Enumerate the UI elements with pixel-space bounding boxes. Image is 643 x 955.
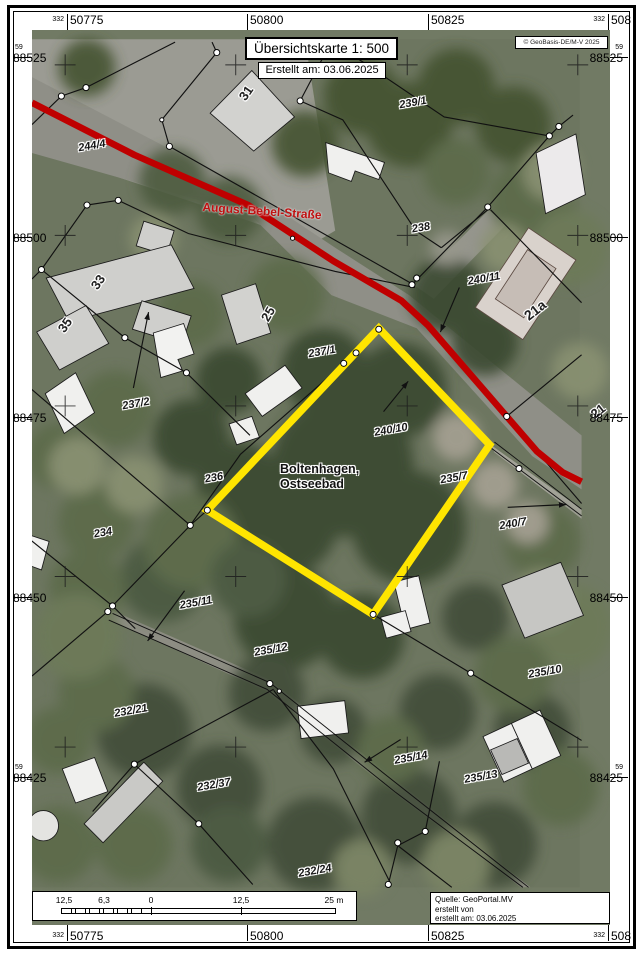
scale-bar-tick bbox=[241, 907, 242, 915]
scale-label: 12,5 bbox=[56, 895, 73, 905]
scale-bar-segment bbox=[103, 908, 114, 914]
coordinate-prefix: 59 bbox=[15, 764, 23, 771]
source-line1: Quelle: GeoPortal.MV bbox=[435, 895, 605, 905]
map-sheet: 244/4 31 239/1 August-Bebel-Straße 238 2… bbox=[0, 0, 643, 955]
coordinate-prefix: 59 bbox=[15, 44, 23, 51]
grid-tick bbox=[428, 14, 429, 30]
source-line2: erstellt von bbox=[435, 905, 605, 915]
map-title-box: Übersichtskarte 1: 500 bbox=[245, 37, 398, 60]
scale-label: 0 bbox=[149, 895, 154, 905]
coordinate-prefix: 332 bbox=[593, 932, 605, 939]
coordinate-label: 88425 bbox=[13, 771, 46, 785]
coordinate-label: 88450 bbox=[13, 591, 46, 605]
grid-tick bbox=[67, 925, 68, 941]
coordinate-label: 88500 bbox=[590, 231, 623, 245]
scale-bar-segment bbox=[75, 908, 86, 914]
coordinate-prefix: 332 bbox=[52, 932, 64, 939]
coordinate-label: 88525 bbox=[590, 51, 623, 65]
coordinate-label: 88425 bbox=[590, 771, 623, 785]
coordinate-label: 50800 bbox=[250, 13, 283, 27]
scale-label: 25 m bbox=[325, 895, 344, 905]
scale-label: 6,3 bbox=[98, 895, 110, 905]
scale-bar-segment bbox=[61, 908, 72, 914]
grid-tick bbox=[428, 925, 429, 941]
grid-tick bbox=[247, 14, 248, 30]
coordinate-label: 50850 bbox=[611, 13, 631, 27]
coordinate-label: 50800 bbox=[250, 929, 283, 943]
coordinate-label: 88475 bbox=[590, 411, 623, 425]
coordinate-label: 50850 bbox=[611, 929, 631, 943]
grid-tick bbox=[67, 14, 68, 30]
scale-bar: 12,5 6,3 0 12,5 25 m bbox=[32, 891, 357, 921]
grid-tick bbox=[247, 925, 248, 941]
scale-bar-segment bbox=[117, 908, 128, 914]
scale-bar-tick bbox=[151, 907, 152, 915]
source-line3: erstellt am: 03.06.2025 bbox=[435, 914, 605, 924]
grid-tick bbox=[608, 925, 609, 941]
coordinate-label: 50775 bbox=[70, 929, 103, 943]
coordinate-label: 88500 bbox=[13, 231, 46, 245]
coordinate-prefix: 332 bbox=[52, 16, 64, 23]
source-info-box: Quelle: GeoPortal.MV erstellt von erstel… bbox=[430, 892, 610, 924]
grid-tick bbox=[608, 14, 609, 30]
scale-bar-segment bbox=[89, 908, 100, 914]
coordinate-label: 50775 bbox=[70, 13, 103, 27]
coordinate-prefix: 332 bbox=[593, 16, 605, 23]
coordinate-label: 88450 bbox=[590, 591, 623, 605]
coordinate-label: 88525 bbox=[13, 51, 46, 65]
scale-bar-segment bbox=[131, 908, 142, 914]
coordinate-prefix: 59 bbox=[615, 764, 623, 771]
coordinate-label: 88475 bbox=[13, 411, 46, 425]
coordinate-label: 50825 bbox=[431, 13, 464, 27]
created-date-box: Erstellt am: 03.06.2025 bbox=[258, 62, 386, 79]
map-canvas bbox=[32, 30, 610, 925]
coordinate-prefix: 59 bbox=[615, 44, 623, 51]
map-graphics bbox=[32, 30, 610, 925]
copyright-box: © GeoBasis-DE/M-V 2025 bbox=[515, 36, 608, 49]
coordinate-label: 50825 bbox=[431, 929, 464, 943]
scale-label: 12,5 bbox=[233, 895, 250, 905]
